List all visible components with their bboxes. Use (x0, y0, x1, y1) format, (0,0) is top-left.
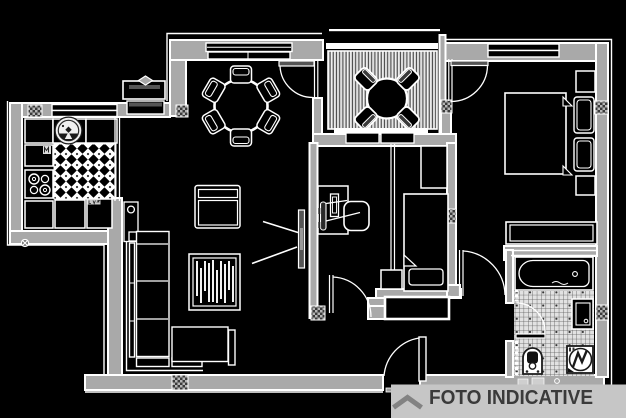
svg-text:FOTO INDICATIVE: FOTO INDICATIVE (429, 386, 593, 409)
